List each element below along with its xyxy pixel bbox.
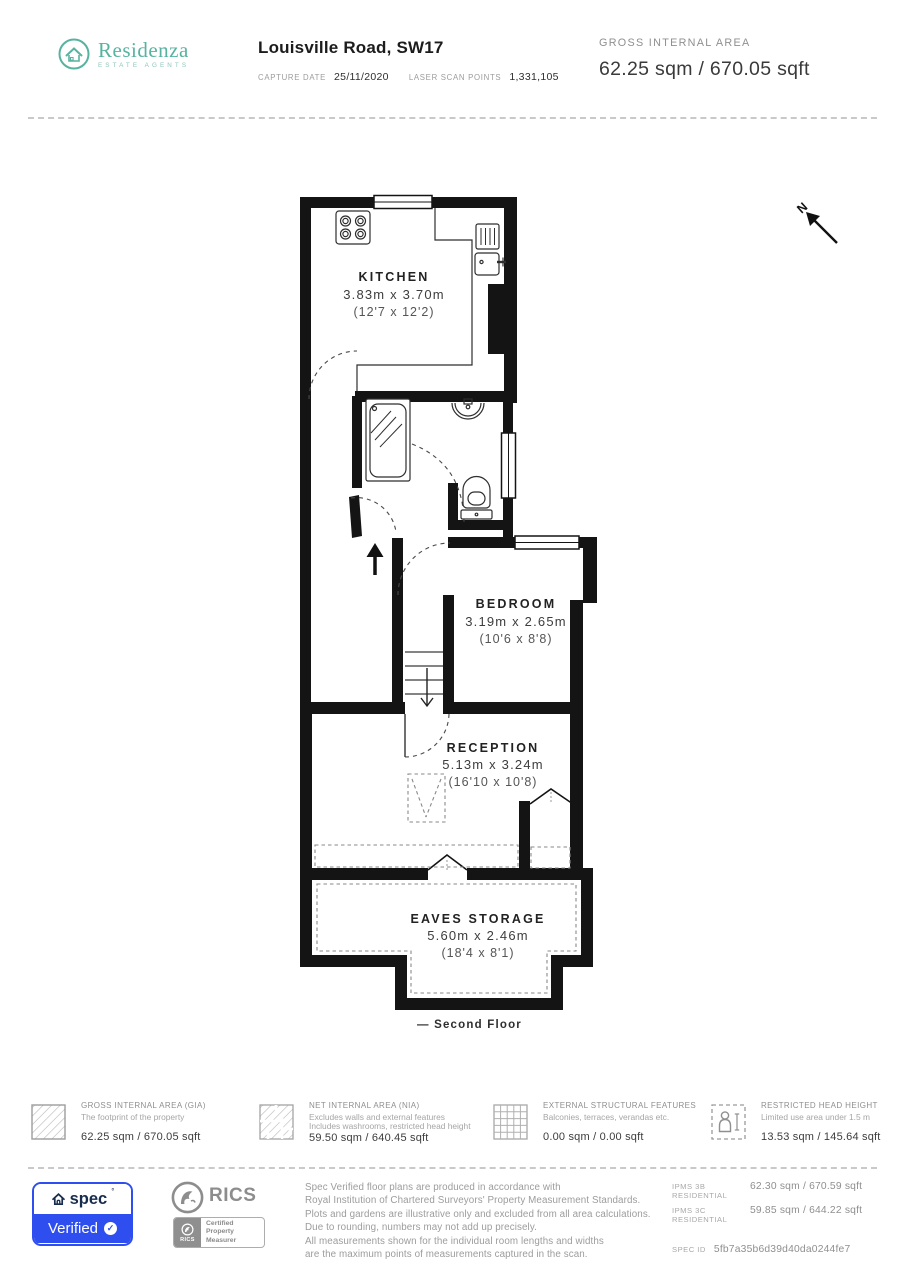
capture-date-label: CAPTURE DATE xyxy=(258,73,326,82)
disclaimer-line: Due to rounding, numbers may not add up … xyxy=(305,1221,667,1234)
grid-square-icon xyxy=(492,1101,530,1143)
eaves-name: EAVES STORAGE xyxy=(410,912,545,926)
residenza-house-icon xyxy=(57,36,91,72)
bathroom-fixtures xyxy=(366,399,492,519)
disclaimer-line: Spec Verified floor plans are produced i… xyxy=(305,1181,667,1194)
spec-reg-mark: ° xyxy=(111,1187,114,1196)
ipms-3b-row: IPMS 3B RESIDENTIAL 62.30 sqm / 670.59 s… xyxy=(672,1181,862,1200)
ipms-3c-row: IPMS 3C RESIDENTIAL 59.85 sqm / 644.22 s… xyxy=(672,1205,862,1224)
legend-external-desc: Balconies, terraces, verandas etc. xyxy=(543,1113,696,1123)
spec-id-label: SPEC ID xyxy=(672,1245,706,1254)
brand-tagline: ESTATE AGENTS xyxy=(98,62,189,69)
legend-nia-title: NET INTERNAL AREA (NIA) xyxy=(309,1101,471,1110)
cert-line-3: Measurer xyxy=(206,1237,264,1246)
gia-block: GROSS INTERNAL AREA 62.25 sqm / 670.05 s… xyxy=(599,37,810,81)
rics-wordmark: RICS xyxy=(209,1185,256,1207)
eaves-dims-m: 5.60m x 2.46m xyxy=(427,928,529,943)
hatched-square-icon xyxy=(30,1101,68,1143)
rooflight-marker xyxy=(408,774,445,822)
spec-id-value: 5fb7a35b6d39d40da0244fe7 xyxy=(714,1244,851,1255)
reception-dims-m: 5.13m x 3.24m xyxy=(442,757,544,772)
floor-label: — Second Floor xyxy=(417,1019,522,1031)
person-dashed-square-icon xyxy=(710,1101,748,1143)
reception-name: RECEPTION xyxy=(447,741,540,755)
reception-dims-ft: (16'10 x 10'8) xyxy=(449,775,538,789)
spec-verified-badge: spec ° Verified ✓ xyxy=(32,1182,133,1246)
disclaimer-line: are the maximum points of measurements c… xyxy=(305,1248,667,1261)
legend-external-title: EXTERNAL STRUCTURAL FEATURES xyxy=(543,1101,696,1110)
cert-line-1: Certified xyxy=(206,1220,264,1229)
brand-logo: Residenza ESTATE AGENTS xyxy=(57,36,189,72)
legend-nia: NET INTERNAL AREA (NIA) Excludes walls a… xyxy=(258,1101,471,1143)
ipms-3c-label: IPMS 3C RESIDENTIAL xyxy=(672,1206,750,1224)
rics-mini-lion-icon xyxy=(181,1223,194,1236)
ipms-3b-value: 62.30 sqm / 670.59 sqft xyxy=(750,1181,862,1192)
entry-door-leaf xyxy=(349,495,362,538)
kitchen-door-arc xyxy=(309,351,357,399)
bath-icon xyxy=(366,399,410,481)
bedroom-door-arc xyxy=(398,543,450,595)
legend-restricted-title: RESTRICTED HEAD HEIGHT xyxy=(761,1101,881,1110)
ipms-block: IPMS 3B RESIDENTIAL 62.30 sqm / 670.59 s… xyxy=(672,1181,862,1224)
legend-gia-value: 62.25 sqm / 670.05 sqft xyxy=(81,1131,206,1143)
hatched-floorplan-icon xyxy=(258,1101,296,1143)
entry-arrow xyxy=(367,543,384,575)
top-dashed-divider xyxy=(28,117,877,119)
floorplan-drawing: N KITCHEN 3.83m x 3.70m (12'7 x 12'2) BE… xyxy=(0,150,905,1067)
bedroom-name: BEDROOM xyxy=(476,597,557,611)
spec-verified-word: Verified xyxy=(48,1220,98,1237)
ipms-3b-label: IPMS 3B RESIDENTIAL xyxy=(672,1182,750,1200)
floorplan-page: Residenza ESTATE AGENTS Louisville Road,… xyxy=(0,0,905,1280)
bedroom-dims-ft: (10'6 x 8'8) xyxy=(479,632,552,646)
disclaimer-line: Plots and gardens are illustrative only … xyxy=(305,1208,667,1221)
legend-external: EXTERNAL STRUCTURAL FEATURES Balconies, … xyxy=(492,1101,696,1143)
floorplan-svg: N KITCHEN 3.83m x 3.70m (12'7 x 12'2) BE… xyxy=(0,150,905,1062)
legend-nia-desc-2: Includes washrooms, restricted head heig… xyxy=(309,1122,471,1132)
page-title: Louisville Road, SW17 xyxy=(258,38,559,58)
title-block: Louisville Road, SW17 CAPTURE DATE 25/11… xyxy=(258,38,559,83)
legend-gia-desc: The footprint of the property xyxy=(81,1113,206,1123)
laser-points-value: 1,331,105 xyxy=(509,71,558,83)
gia-value: 62.25 sqm / 670.05 sqft xyxy=(599,58,810,81)
spec-house-icon xyxy=(51,1192,66,1206)
sink-icon xyxy=(475,253,499,275)
rics-certified-badge: RICS Certified Property Measurer xyxy=(173,1217,265,1248)
kitchen-dims-m: 3.83m x 3.70m xyxy=(343,287,445,302)
cert-line-2: Property xyxy=(206,1228,264,1237)
bottom-dashed-divider xyxy=(28,1167,877,1169)
capture-meta: CAPTURE DATE 25/11/2020 LASER SCAN POINT… xyxy=(258,71,559,83)
ipms-3c-value: 59.85 sqm / 644.22 sqft xyxy=(750,1205,862,1216)
capture-date-value: 25/11/2020 xyxy=(334,71,389,83)
legend-gia-title: GROSS INTERNAL AREA (GIA) xyxy=(81,1101,206,1110)
hob-icon xyxy=(336,211,370,244)
bedroom-dims-m: 3.19m x 2.65m xyxy=(465,614,567,629)
kitchen-dims-ft: (12'7 x 12'2) xyxy=(353,305,434,319)
brand-name: Residenza xyxy=(98,40,189,60)
disclaimer-line: All measurements shown for the individua… xyxy=(305,1235,667,1248)
disclaimer-text: Spec Verified floor plans are produced i… xyxy=(305,1181,667,1261)
eaves-dims-ft: (18'4 x 8'1) xyxy=(441,946,514,960)
legend-nia-value: 59.50 sqm / 640.45 sqft xyxy=(309,1132,471,1144)
laser-points-label: LASER SCAN POINTS xyxy=(409,73,502,82)
reception-door-arc xyxy=(405,714,449,757)
north-arrow: N xyxy=(794,200,837,243)
disclaimer-line: Royal Institution of Chartered Surveyors… xyxy=(305,1194,667,1207)
rics-lion-icon xyxy=(171,1181,204,1214)
room-labels: KITCHEN 3.83m x 3.70m (12'7 x 12'2) BEDR… xyxy=(343,270,567,1031)
stairs-down-arrow xyxy=(421,668,433,706)
drainer-icon xyxy=(476,224,499,249)
spec-id-row: SPEC ID 5fb7a35b6d39d40da0244fe7 xyxy=(672,1244,850,1255)
dormer-ticks xyxy=(447,792,551,870)
spec-brand-word: spec xyxy=(70,1190,108,1209)
rics-mini-word: RICS xyxy=(180,1237,195,1243)
legend-gia: GROSS INTERNAL AREA (GIA) The footprint … xyxy=(30,1101,206,1143)
gia-label: GROSS INTERNAL AREA xyxy=(599,37,810,49)
rics-certified-mark: RICS xyxy=(174,1218,201,1247)
kitchen-name: KITCHEN xyxy=(359,270,430,284)
legend-restricted-desc: Limited use area under 1.5 m xyxy=(761,1113,881,1123)
stairs xyxy=(405,652,443,694)
legend-restricted: RESTRICTED HEAD HEIGHT Limited use area … xyxy=(710,1101,881,1143)
verified-check-icon: ✓ xyxy=(104,1222,117,1235)
legend-restricted-value: 13.53 sqm / 145.64 sqft xyxy=(761,1131,881,1143)
legend-external-value: 0.00 sqm / 0.00 sqft xyxy=(543,1131,696,1143)
